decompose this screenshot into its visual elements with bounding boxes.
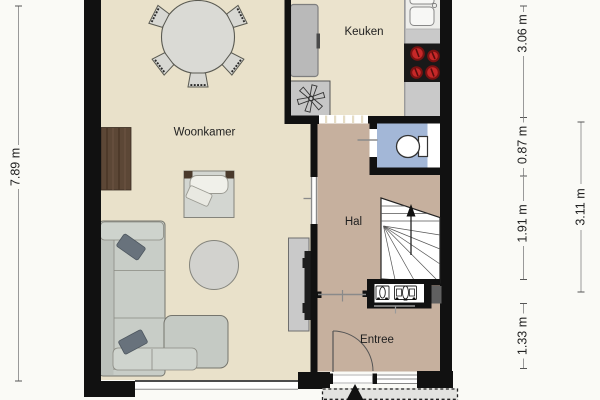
svg-text:Woonkamer: Woonkamer — [174, 127, 236, 139]
svg-text:Keuken: Keuken — [344, 26, 383, 38]
svg-text:Entree: Entree — [360, 334, 394, 346]
svg-text:1.33 m: 1.33 m — [516, 317, 530, 355]
svg-text:Hal: Hal — [345, 216, 362, 228]
svg-text:3.06 m: 3.06 m — [516, 14, 530, 52]
svg-text:3.11 m: 3.11 m — [574, 188, 588, 225]
svg-text:0.87 m: 0.87 m — [516, 126, 530, 164]
svg-text:7.89 m: 7.89 m — [9, 148, 23, 186]
svg-text:1.91 m: 1.91 m — [516, 204, 530, 242]
